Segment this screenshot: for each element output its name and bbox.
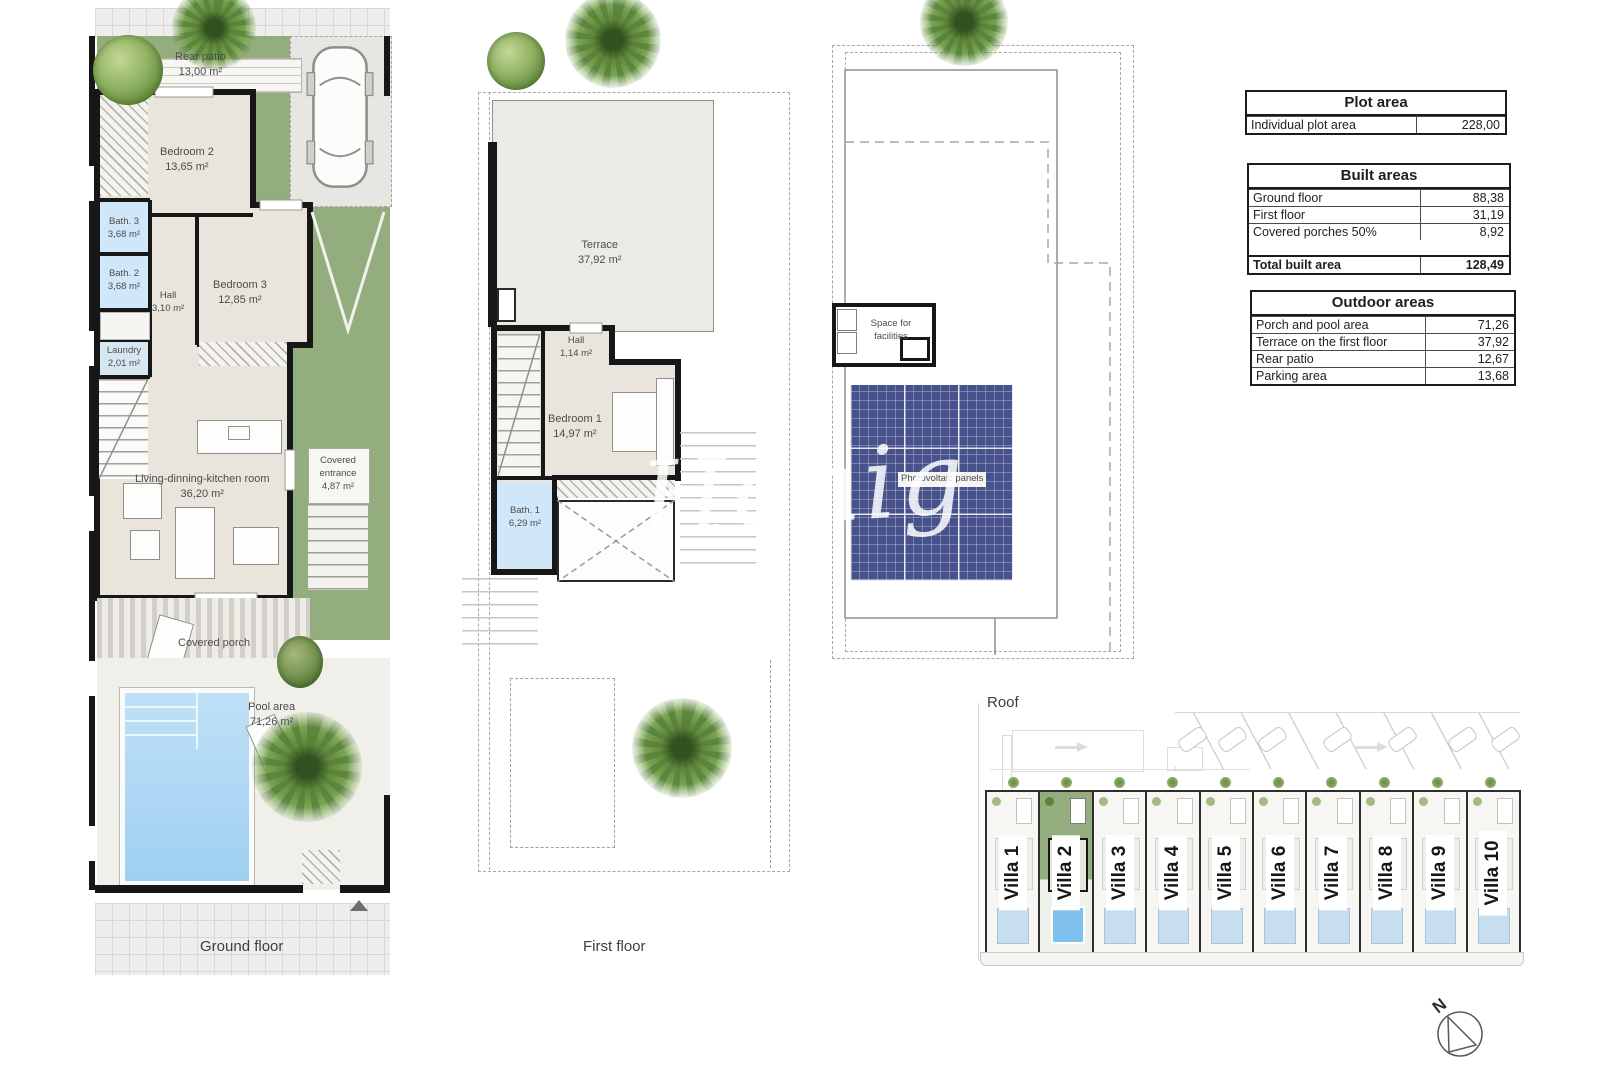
garden-tuft [1008,777,1019,788]
room-area: 3,68 m² [108,229,140,240]
ff-palm-bottom [632,698,732,798]
mini-pool [1371,908,1403,944]
room-name: Covered entrance [320,455,357,479]
room-label-bath3: Bath. 3 3,68 m² [101,216,147,242]
gf-bush-tree [93,35,163,105]
gf-left-boundary-wall [89,36,95,890]
garden-tuft [1114,777,1125,788]
ff-dashed-line-right [770,660,771,868]
gf-entrance-arrow [350,900,368,911]
room-label-bath1: Bath. 1 6,29 m² [502,505,548,531]
villa-cell-10: Villa 10 [1468,792,1519,954]
row-label: Porch and pool area [1252,317,1425,333]
gf-kitchen-counter [199,342,287,366]
mini-tuft [1206,797,1215,806]
mini-garage [1070,798,1086,824]
villa-label: Villa 9 [1426,836,1454,911]
villa-cell-4: Villa 4 [1147,792,1200,954]
villa-cell-5: Villa 5 [1201,792,1254,954]
built-table-title: Built areas [1249,165,1509,189]
mini-garage [1444,798,1460,824]
ff-void-x [557,500,675,582]
villa-label: Villa 5 [1212,836,1240,911]
mini-tuft [1045,797,1054,806]
villa-cell-9: Villa 9 [1414,792,1467,954]
villa-cell-7: Villa 7 [1307,792,1360,954]
room-label-covered-entrance: Covered entrance 4,87 m² [310,455,366,493]
mini-pool [1104,908,1136,944]
row-label: Individual plot area [1247,117,1416,133]
room-area: 12,85 m² [218,294,261,306]
villa-row: Villa 1 Villa 2 Villa 3 Villa 4 Villa 5 … [985,790,1521,956]
ground-floor-title: Ground floor [200,938,283,955]
room-label-terrace: Terrace 37,92 m² [578,238,621,268]
gf-entrance-steps [308,504,368,590]
mini-garage [1230,798,1246,824]
room-label-bedroom2: Bedroom 2 13,65 m² [160,145,214,175]
mini-pool [997,908,1029,944]
gf-island-sink [228,426,250,440]
room-area: 3,68 m² [108,281,140,292]
room-name: Bedroom 3 [213,279,267,291]
room-label-pool: Pool area 71,26 m² [248,700,295,730]
gf-sofa [175,507,215,579]
road-direction-arrow [1355,742,1388,752]
room-area: 1,14 m² [560,348,592,359]
table-total-row: Total built area 128,49 [1249,255,1509,273]
mini-tuft [1366,797,1375,806]
room-area: 36,20 m² [181,488,224,500]
mini-garage [1497,798,1513,824]
mini-pool [1264,908,1296,944]
roof-facilities-rack1 [837,309,857,331]
room-area: 71,26 m² [250,716,293,728]
room-name: Terrace [581,239,618,251]
room-label-hall-ff: Hall 1,14 m² [560,335,592,361]
road-direction-arrow [1055,742,1088,752]
ff-bush-top [487,32,545,90]
gf-right-boundary-top [384,36,390,96]
gf-shower [100,312,150,340]
mini-tuft [1099,797,1108,806]
row-label: Parking area [1252,368,1425,384]
table-row: Individual plot area 228,00 [1247,116,1505,133]
roof-facilities-label: Space for facilities [858,318,924,344]
mini-pool [1051,906,1085,944]
gf-bush-pool [277,636,323,688]
ff-steps-left [462,578,538,646]
gf-pool-steps [125,693,225,763]
table-spacer-row [1249,240,1509,255]
ff-wardrobe [557,480,675,498]
room-name: Bath. 1 [510,505,540,516]
room-area: 13,00 m² [179,66,222,78]
row-value: 71,26 [1425,317,1514,333]
gf-stairs-diagonal [99,379,148,479]
mini-tuft [992,797,1001,806]
mini-tuft [1152,797,1161,806]
room-area: 14,97 m² [553,428,596,440]
gf-street-wall-right [340,885,390,893]
table-row: Covered porches 50% 8,92 [1249,223,1509,240]
room-name: Laundry [107,345,141,356]
villa-label: Villa 10 [1479,830,1507,915]
plot-area-table: Plot area Individual plot area 228,00 [1245,90,1507,135]
table-row: Terrace on the first floor 37,92 [1252,333,1514,350]
room-name: Bedroom 2 [160,146,214,158]
mini-tuft [1259,797,1268,806]
room-area: 3,10 m² [152,303,184,314]
room-name: Bath. 3 [109,216,139,227]
mini-garage [1177,798,1193,824]
gf-gate-hatch [302,850,340,884]
row-value: 13,68 [1425,368,1514,384]
floor-plan-sheet: Rear patio 13,00 m² Bedroom 2 13,65 m² B… [0,0,1620,1080]
gf-coffee-table [130,530,160,560]
table-row: Rear patio 12,67 [1252,350,1514,367]
row-value: 88,38 [1420,190,1509,206]
row-value: 31,19 [1420,207,1509,223]
villa-label: Villa 2 [1052,836,1080,911]
villa-cell-3: Villa 3 [1094,792,1147,954]
garden-tuft [1061,777,1072,788]
arrow-head [1077,742,1088,752]
ff-palm-top [565,0,661,88]
roof-facilities-rack2 [837,332,857,354]
garden-tuft [1379,777,1390,788]
room-name: Bath. 2 [109,268,139,279]
site-left-line [978,703,979,961]
roof-title: Roof [987,694,1019,711]
row-label: Covered porches 50% [1249,224,1420,240]
mini-pool [1158,908,1190,944]
ff-pool-projection [510,678,615,848]
villa-label: Villa 8 [1373,836,1401,911]
garden-tuft [1220,777,1231,788]
ff-stairs-diagonal [498,334,540,476]
room-name: Hall [160,290,176,301]
villa-label: Villa 3 [1106,836,1134,911]
row-value: 128,49 [1420,257,1509,273]
built-areas-table: Built areas Ground floor 88,38 First flo… [1247,163,1511,275]
row-value: 228,00 [1416,117,1505,133]
villa-label: Villa 6 [1266,836,1294,911]
villa-cell-1: Villa 1 [987,792,1040,954]
outdoor-table-title: Outdoor areas [1252,292,1514,316]
room-label-bedroom3: Bedroom 3 12,85 m² [213,278,267,308]
mini-tuft [1312,797,1321,806]
room-label-hall-gf: Hall 3,10 m² [152,290,184,316]
table-row: Parking area 13,68 [1252,367,1514,384]
first-floor-title: First floor [583,938,646,955]
arrow-shaft [1355,746,1377,749]
room-label-bath2: Bath. 2 3,68 m² [101,268,147,294]
room-label-living: Living-dinning-kitchen room 36,20 m² [135,472,270,502]
outdoor-areas-table: Outdoor areas Porch and pool area 71,26 … [1250,290,1516,386]
mini-garage [1016,798,1032,824]
ff-bed-side [656,378,674,466]
plot-table-title: Plot area [1247,92,1505,116]
north-letter: N [1429,995,1450,1018]
table-row: Porch and pool area 71,26 [1252,316,1514,333]
table-row: Ground floor 88,38 [1249,189,1509,206]
mini-tuft [1473,797,1482,806]
arrow-head [1377,742,1388,752]
villa-label: Villa 7 [1319,836,1347,911]
row-value: 37,92 [1425,334,1514,350]
table-row: First floor 31,19 [1249,206,1509,223]
gf-street-wall-left [95,885,303,893]
garden-tuft [1167,777,1178,788]
row-value: 8,92 [1420,224,1509,240]
room-area: 6,29 m² [509,518,541,529]
room-name: Rear patio [175,51,226,63]
room-name: Pool area [248,701,295,713]
room-name: Bedroom 1 [548,413,602,425]
villa-label: Villa 1 [999,836,1027,911]
gf-right-wall-segment [384,795,390,890]
room-name: Hall [568,335,584,346]
room-label-laundry: Laundry 2,01 m² [100,345,148,371]
row-label: Terrace on the first floor [1252,334,1425,350]
garden-tuft [1432,777,1443,788]
garden-tuft [1485,777,1496,788]
villa-label: Villa 4 [1159,836,1187,911]
mini-garage [1283,798,1299,824]
mini-tuft [1419,797,1428,806]
mini-garage [1337,798,1353,824]
mini-pool [1318,908,1350,944]
room-name: Living-dinning-kitchen room [135,473,270,485]
row-value: 12,67 [1425,351,1514,367]
room-area: 4,87 m² [322,481,354,492]
row-label: Total built area [1249,257,1420,273]
row-label: First floor [1249,207,1420,223]
villa-cell-2-highlighted: Villa 2 [1040,792,1093,954]
room-name: Covered porch [178,637,250,649]
mini-pool [1425,908,1457,944]
arrow-shaft [1055,746,1077,749]
villa-cell-8: Villa 8 [1361,792,1414,954]
mini-garage [1390,798,1406,824]
room-label-bedroom1: Bedroom 1 14,97 m² [548,412,602,442]
garden-tuft [1326,777,1337,788]
row-label: Ground floor [1249,190,1420,206]
garden-tuft [1273,777,1284,788]
site-road-edge [990,769,1250,770]
room-area: 2,01 m² [108,358,140,369]
room-area: 13,65 m² [165,161,208,173]
room-label-covered-porch: Covered porch [178,636,250,651]
gf-wardrobe [100,96,148,196]
gf-dining-table [233,527,279,565]
villa-cell-6: Villa 6 [1254,792,1307,954]
site-sidewalk [980,952,1524,966]
roof-pv-label: Photovoltaic panels [898,472,986,487]
room-label-rear-patio: Rear patio 13,00 m² [175,50,226,80]
row-label: Rear patio [1252,351,1425,367]
mini-garage [1123,798,1139,824]
mini-pool [1211,908,1243,944]
room-area: 37,92 m² [578,254,621,266]
north-compass: N [1408,972,1528,1077]
ff-steps-right [680,432,756,568]
